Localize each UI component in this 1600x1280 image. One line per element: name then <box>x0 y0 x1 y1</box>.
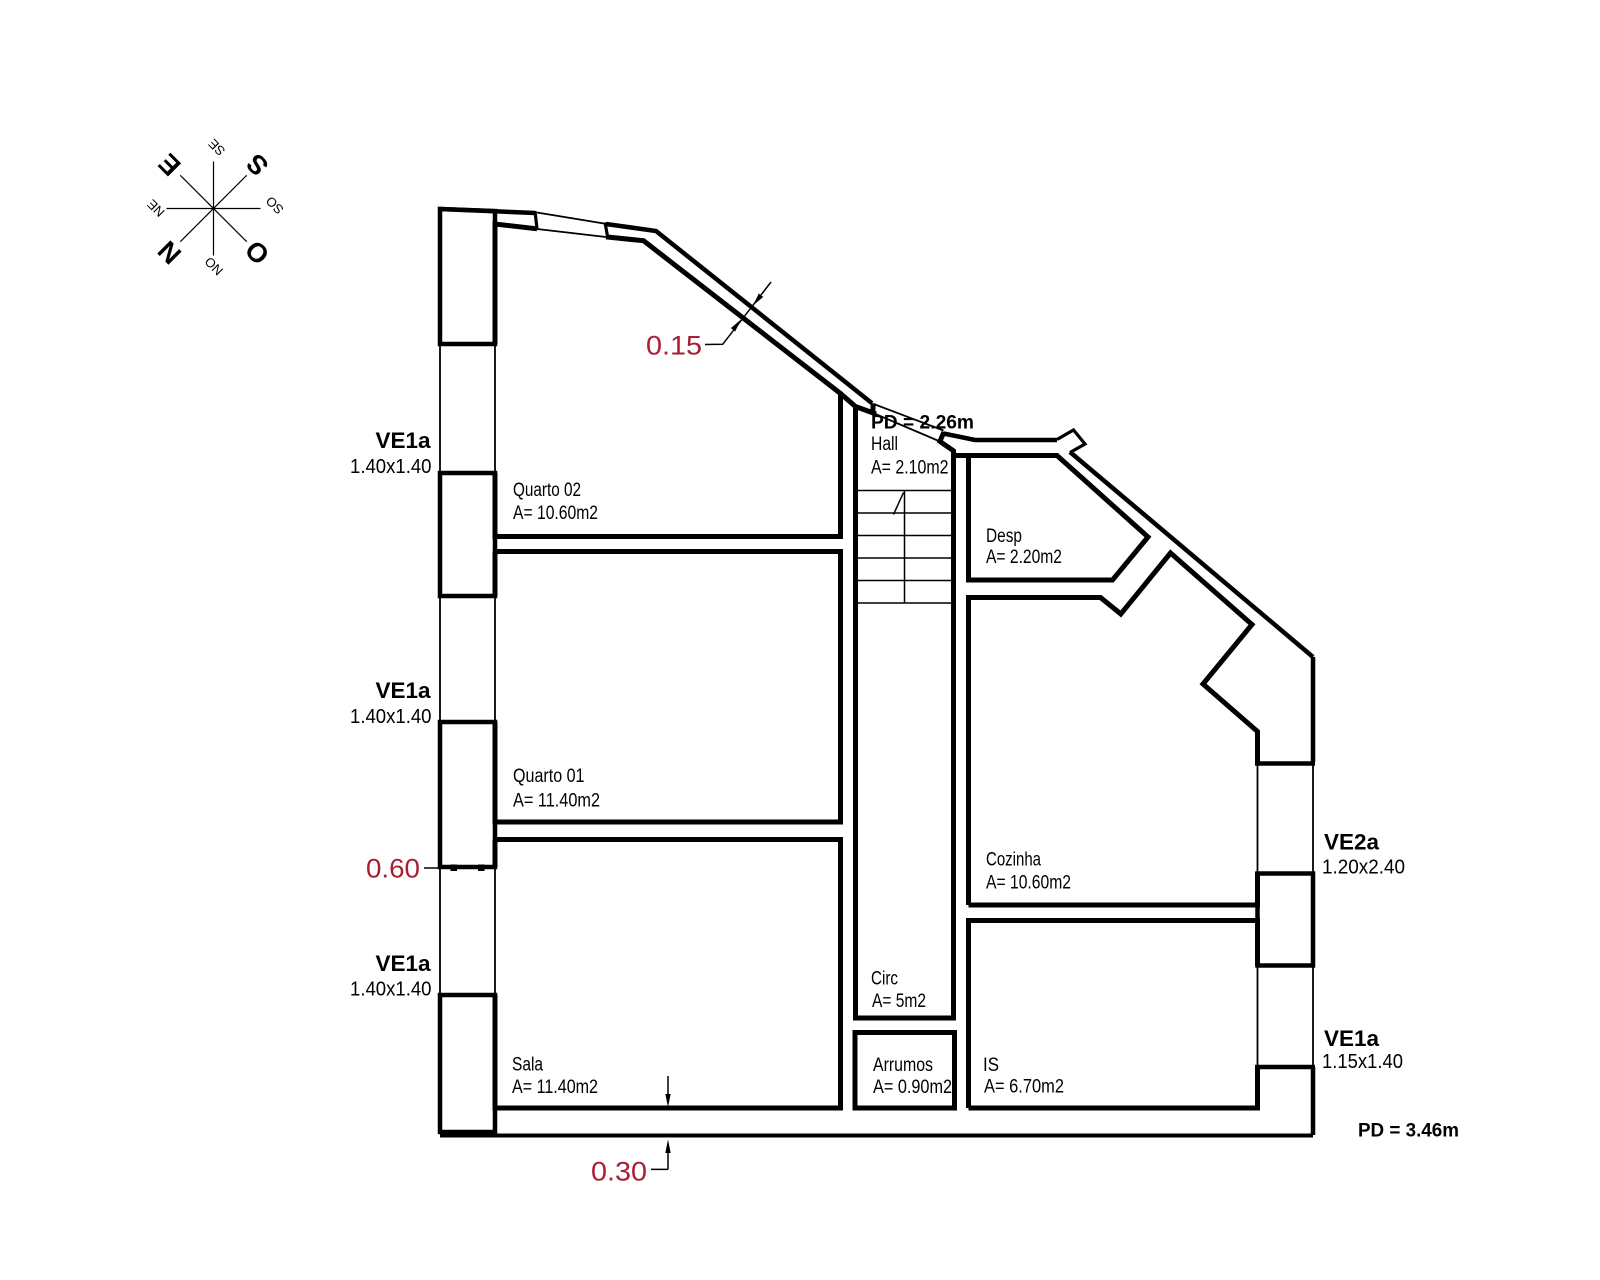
svg-text:0.15: 0.15 <box>646 331 702 361</box>
svg-text:A= 10.60m2: A= 10.60m2 <box>513 503 598 524</box>
svg-text:Hall: Hall <box>871 434 898 455</box>
svg-text:A= 6.70m2: A= 6.70m2 <box>984 1077 1064 1098</box>
svg-text:VE2a: VE2a <box>1324 830 1379 855</box>
svg-text:Quarto 02: Quarto 02 <box>513 480 581 501</box>
svg-text:A= 10.60m2: A= 10.60m2 <box>986 873 1071 894</box>
svg-text:NO: NO <box>202 254 226 278</box>
svg-text:1.20x2.40: 1.20x2.40 <box>1322 857 1405 879</box>
svg-text:SO: SO <box>263 193 287 217</box>
svg-text:0.30: 0.30 <box>591 1157 647 1187</box>
svg-text:Cozinha: Cozinha <box>986 850 1041 871</box>
svg-text:VE1a: VE1a <box>376 678 431 703</box>
svg-text:NE: NE <box>144 196 168 220</box>
svg-text:Quarto 01: Quarto 01 <box>513 766 585 787</box>
svg-text:0.60: 0.60 <box>366 854 420 884</box>
svg-text:A= 0.90m2: A= 0.90m2 <box>873 1077 952 1098</box>
svg-text:PD = 2.26m: PD = 2.26m <box>871 412 974 434</box>
svg-text:A= 11.40m2: A= 11.40m2 <box>512 1077 598 1098</box>
svg-text:A= 5m2: A= 5m2 <box>872 991 926 1012</box>
svg-text:Desp: Desp <box>986 526 1022 547</box>
svg-text:Sala: Sala <box>512 1055 543 1076</box>
svg-text:IS: IS <box>983 1055 999 1076</box>
svg-text:PD = 3.46m: PD = 3.46m <box>1358 1120 1459 1142</box>
svg-text:A= 11.40m2: A= 11.40m2 <box>513 791 600 812</box>
svg-text:1.40x1.40: 1.40x1.40 <box>350 706 432 728</box>
svg-text:1.15x1.40: 1.15x1.40 <box>1322 1051 1403 1073</box>
svg-text:1.40x1.40: 1.40x1.40 <box>350 979 432 1001</box>
svg-text:VE1a: VE1a <box>1324 1026 1379 1051</box>
svg-text:VE1a: VE1a <box>376 951 431 976</box>
svg-text:Arrumos: Arrumos <box>873 1055 933 1076</box>
svg-text:Circ: Circ <box>871 969 898 990</box>
svg-text:1.40x1.40: 1.40x1.40 <box>350 456 432 478</box>
svg-text:A= 2.20m2: A= 2.20m2 <box>986 547 1062 568</box>
svg-text:VE1a: VE1a <box>376 428 431 453</box>
svg-text:SE: SE <box>205 136 228 159</box>
svg-text:A= 2.10m2: A= 2.10m2 <box>871 458 949 479</box>
